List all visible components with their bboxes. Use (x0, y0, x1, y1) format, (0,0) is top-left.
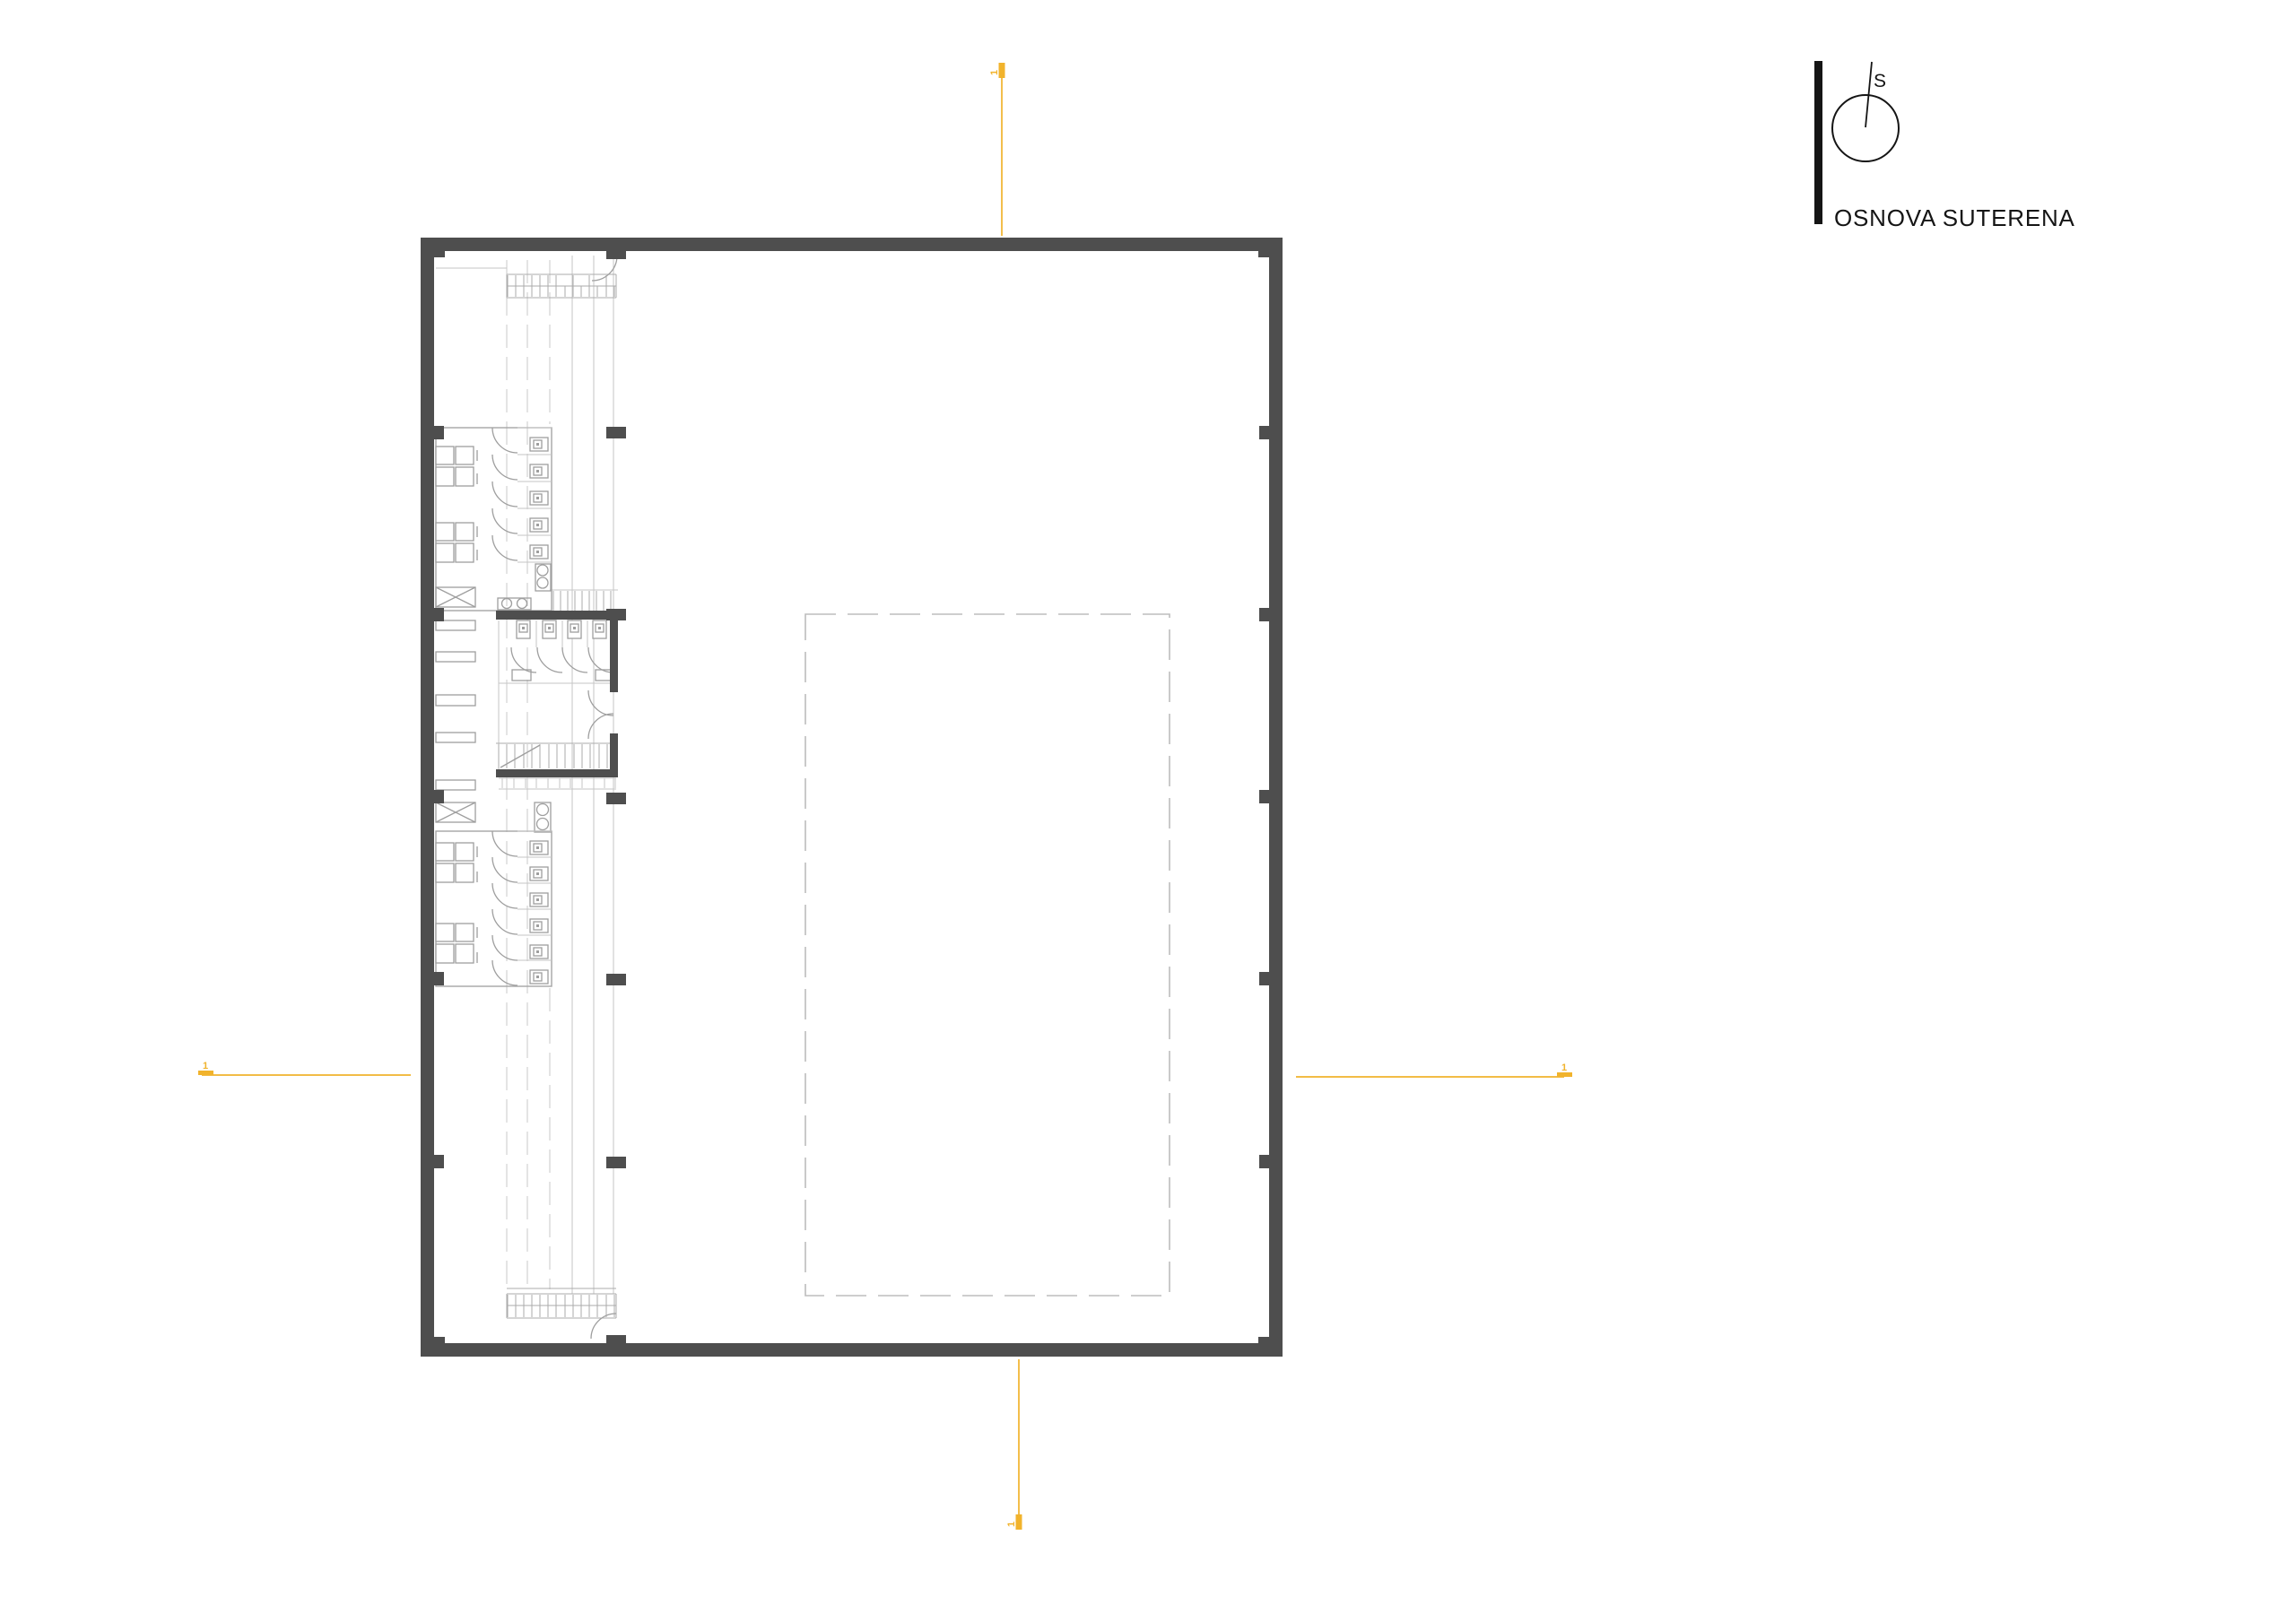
section-line-bottom: 1 (1006, 1359, 1022, 1530)
toilet-stall (492, 960, 552, 985)
building-plan (421, 238, 1283, 1357)
toilet-icon (593, 620, 606, 638)
toilet-stall (492, 935, 552, 960)
sink-counter (498, 598, 531, 610)
section-label: 1 (1561, 1063, 1567, 1073)
drawing-canvas: 1 1 1 1 S OSNOVA SUTERENA (0, 0, 2296, 1622)
table-group (436, 924, 474, 963)
table-group (436, 523, 474, 562)
table-group (436, 447, 474, 486)
plan-title: OSNOVA SUTERENA (1834, 204, 2075, 231)
section-label: 1 (1006, 1522, 1017, 1527)
section-line-right: 1 (1296, 1063, 1572, 1077)
toilet-stall (492, 535, 552, 560)
north-indicator-icon: S (1832, 62, 1899, 161)
toilet-icon (568, 620, 581, 638)
section-label: 1 (989, 70, 1000, 75)
core-double-door (588, 690, 613, 739)
furniture-left-wing (436, 447, 477, 963)
shaft-x-box (436, 587, 475, 607)
toilet-stall (492, 883, 552, 908)
toilet-icon (543, 620, 556, 638)
stair-lower (507, 1288, 616, 1339)
toilet-stall (492, 481, 552, 507)
title-block: S OSNOVA SUTERENA (1814, 61, 2075, 231)
central-core (496, 620, 616, 832)
stair-upper (507, 256, 617, 298)
door-swing-arc (591, 1314, 616, 1339)
toilet-stall (492, 909, 552, 934)
table-group (436, 843, 474, 882)
section-line-left: 1 (198, 1061, 411, 1075)
lockers (436, 620, 475, 790)
north-circle (1832, 95, 1899, 161)
section-label: 1 (203, 1061, 208, 1071)
floor-plan-svg: 1 1 1 1 S OSNOVA SUTERENA (0, 0, 2296, 1622)
toilet-stall (492, 455, 552, 480)
core-toilets (511, 620, 613, 672)
toilet-stall (492, 428, 552, 453)
sink-unit (535, 564, 551, 591)
toilet-stall (492, 831, 552, 856)
toilet-stall (492, 857, 552, 882)
sink-unit (535, 802, 551, 832)
structural-columns (434, 251, 1269, 1343)
toilet-icon (517, 620, 530, 638)
toilet-stall (492, 508, 552, 533)
hall-dashed-outline (805, 614, 1170, 1296)
title-bar (1814, 61, 1822, 224)
north-label: S (1874, 71, 1886, 91)
section-line-top: 1 (989, 63, 1005, 236)
stair-central (496, 743, 616, 789)
shaft-x-box (436, 802, 475, 822)
